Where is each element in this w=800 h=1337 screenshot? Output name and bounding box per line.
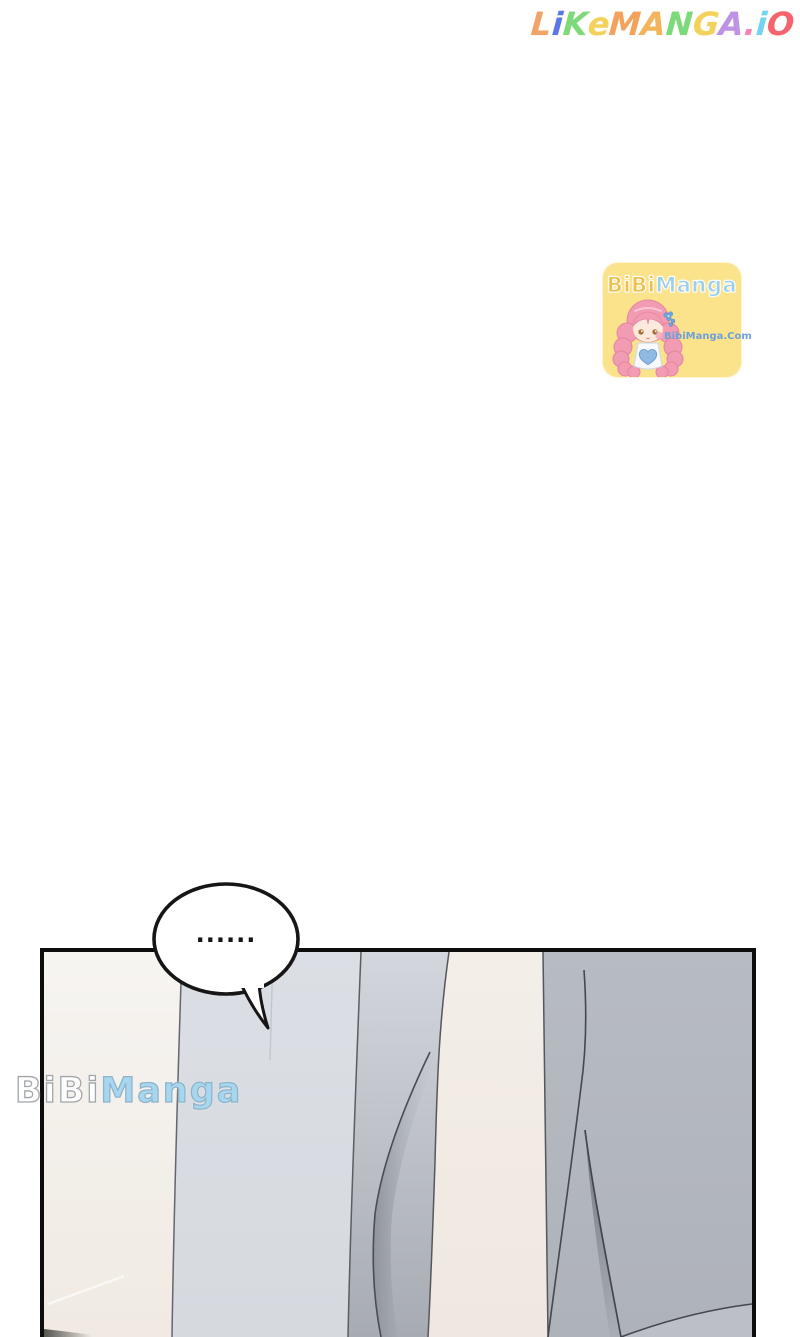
panel-watermark: BiBiManga bbox=[15, 1071, 242, 1111]
logo-letter: O bbox=[765, 4, 795, 44]
badge-title: BiBiManga bbox=[602, 273, 742, 297]
bibimanga-badge: BiBiManga bbox=[602, 262, 742, 378]
logo-letter: M bbox=[608, 4, 643, 44]
logo-letter: L bbox=[530, 4, 553, 44]
logo-letter: G bbox=[691, 4, 720, 44]
site-logo[interactable]: LiKeMANGA.iO bbox=[531, 4, 794, 48]
badge-site-url: BibiManga.Com bbox=[664, 331, 742, 342]
speech-bubble-text: ...... bbox=[150, 920, 302, 948]
badge-title-manga: Manga bbox=[655, 273, 737, 297]
logo-letter: A bbox=[718, 4, 746, 44]
logo-letter: N bbox=[664, 4, 694, 44]
watermark-bibi: BiBi bbox=[15, 1071, 100, 1111]
watermark-manga: Manga bbox=[100, 1071, 242, 1111]
logo-letter: K bbox=[561, 4, 589, 44]
badge-title-bibi: BiBi bbox=[607, 273, 655, 297]
logo-letter: A bbox=[640, 4, 668, 44]
speech-bubble bbox=[150, 882, 306, 1032]
manga-panel bbox=[40, 948, 756, 1337]
